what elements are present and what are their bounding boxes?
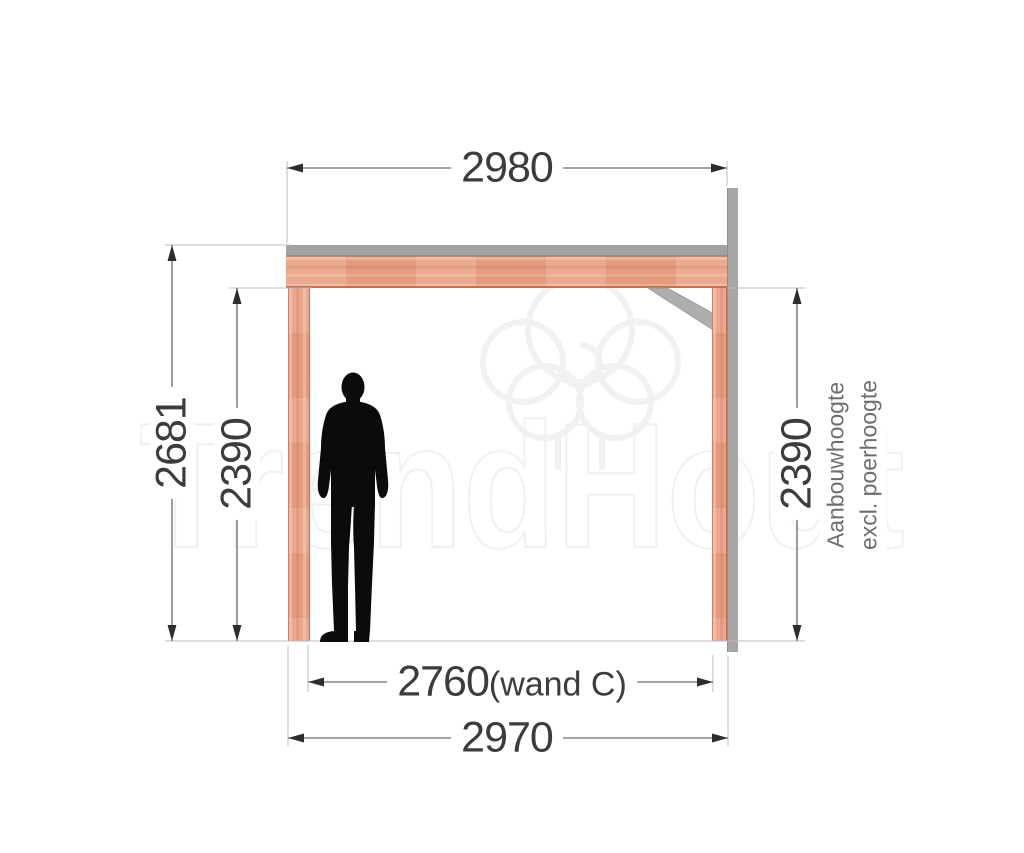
dimension-left-outer-height: 2681 (150, 387, 195, 499)
dimension-top-width: 2980 (451, 146, 563, 191)
dimension-bottom-outer-width: 2970 (451, 716, 563, 761)
dimension-left-inner-height: 2390 (215, 408, 260, 520)
note-line-2: excl. poerhoogte (853, 380, 886, 550)
bottom-inner-suffix: (wand C) (489, 666, 627, 704)
dimension-bottom-inner-width: 2760(wand C) (387, 660, 637, 705)
dimension-right-inner-height: 2390 (775, 408, 820, 520)
right-height-note: Aanbouwhoogte excl. poerhoogte (820, 380, 887, 550)
note-line-1: Aanbouwhoogte (820, 380, 853, 550)
person-silhouette (308, 372, 398, 648)
bottom-inner-value: 2760 (397, 658, 489, 706)
drawing-canvas: TrendHout (0, 0, 1024, 853)
